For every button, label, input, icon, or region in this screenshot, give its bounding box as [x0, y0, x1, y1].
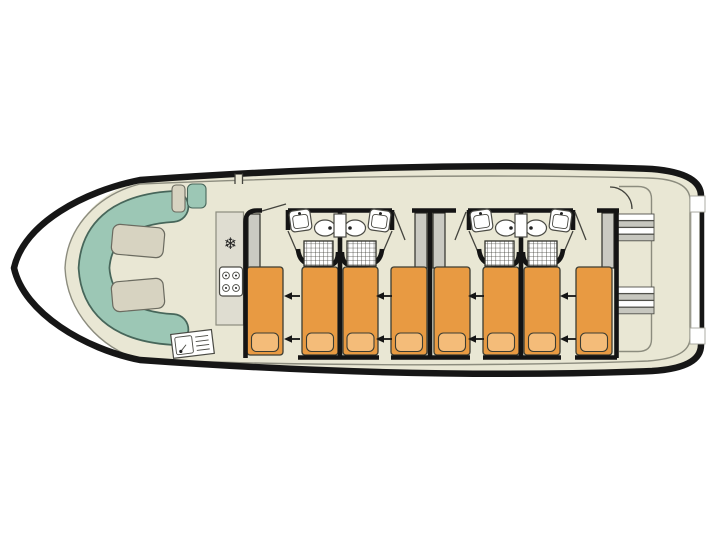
toilet-cistern — [515, 214, 527, 237]
toilet-dot — [328, 226, 332, 230]
shower-icon — [347, 241, 376, 266]
staircase-top-icon — [617, 214, 654, 241]
bed — [434, 267, 470, 355]
toilet-dot — [529, 226, 533, 230]
shower-icon — [528, 241, 557, 266]
wardrobe-cabin-4 — [602, 213, 614, 268]
hull-side-strip — [691, 212, 700, 329]
boat-floor-plan: ❄ — [0, 0, 720, 540]
pillow — [581, 333, 608, 352]
wardrobe-cabin-1 — [248, 214, 260, 268]
corridor-door-gap — [236, 175, 243, 184]
bed — [524, 267, 560, 355]
pillow — [488, 333, 515, 352]
washbasin-icon — [470, 209, 494, 233]
hull-gate-notch-top — [690, 196, 705, 212]
bed — [302, 267, 338, 355]
stove-icon — [220, 267, 243, 296]
galley-sink-icon — [171, 330, 215, 359]
shower-icon — [304, 241, 333, 266]
washbasin-icon — [368, 209, 392, 233]
staircase-bottom-icon — [617, 287, 654, 314]
bed — [247, 267, 283, 355]
bed — [343, 267, 378, 355]
washbasin-icon — [289, 209, 313, 233]
washbasin-icon — [549, 209, 573, 233]
toilet-dot — [509, 226, 513, 230]
shower-icon — [485, 241, 514, 266]
corridor-door-marks — [235, 174, 243, 185]
pillow — [347, 333, 374, 352]
floor-plan-canvas: ❄ — [0, 0, 720, 540]
toilet-dot — [348, 226, 352, 230]
wardrobe-cabin-3 — [433, 213, 445, 268]
freezer-icon: ❄ — [224, 234, 237, 253]
bed — [483, 267, 519, 355]
toilet-icon — [345, 220, 366, 236]
pillow — [307, 333, 334, 352]
hull-gate-notch-bottom — [690, 328, 705, 344]
pillow — [439, 333, 466, 352]
toilet-cistern — [334, 214, 346, 237]
wardrobe-cabin-2 — [415, 213, 427, 268]
toilet-icon — [496, 220, 517, 236]
helm-seat — [188, 184, 207, 208]
bed — [391, 267, 427, 355]
toilet-icon — [315, 220, 336, 236]
pillow — [529, 333, 556, 352]
saloon-table-1 — [111, 224, 165, 258]
pillow — [252, 333, 279, 352]
pillow — [396, 333, 423, 352]
saloon-table-2 — [111, 278, 165, 312]
helm-step — [172, 185, 185, 212]
toilet-icon — [526, 220, 547, 236]
bed — [576, 267, 612, 355]
